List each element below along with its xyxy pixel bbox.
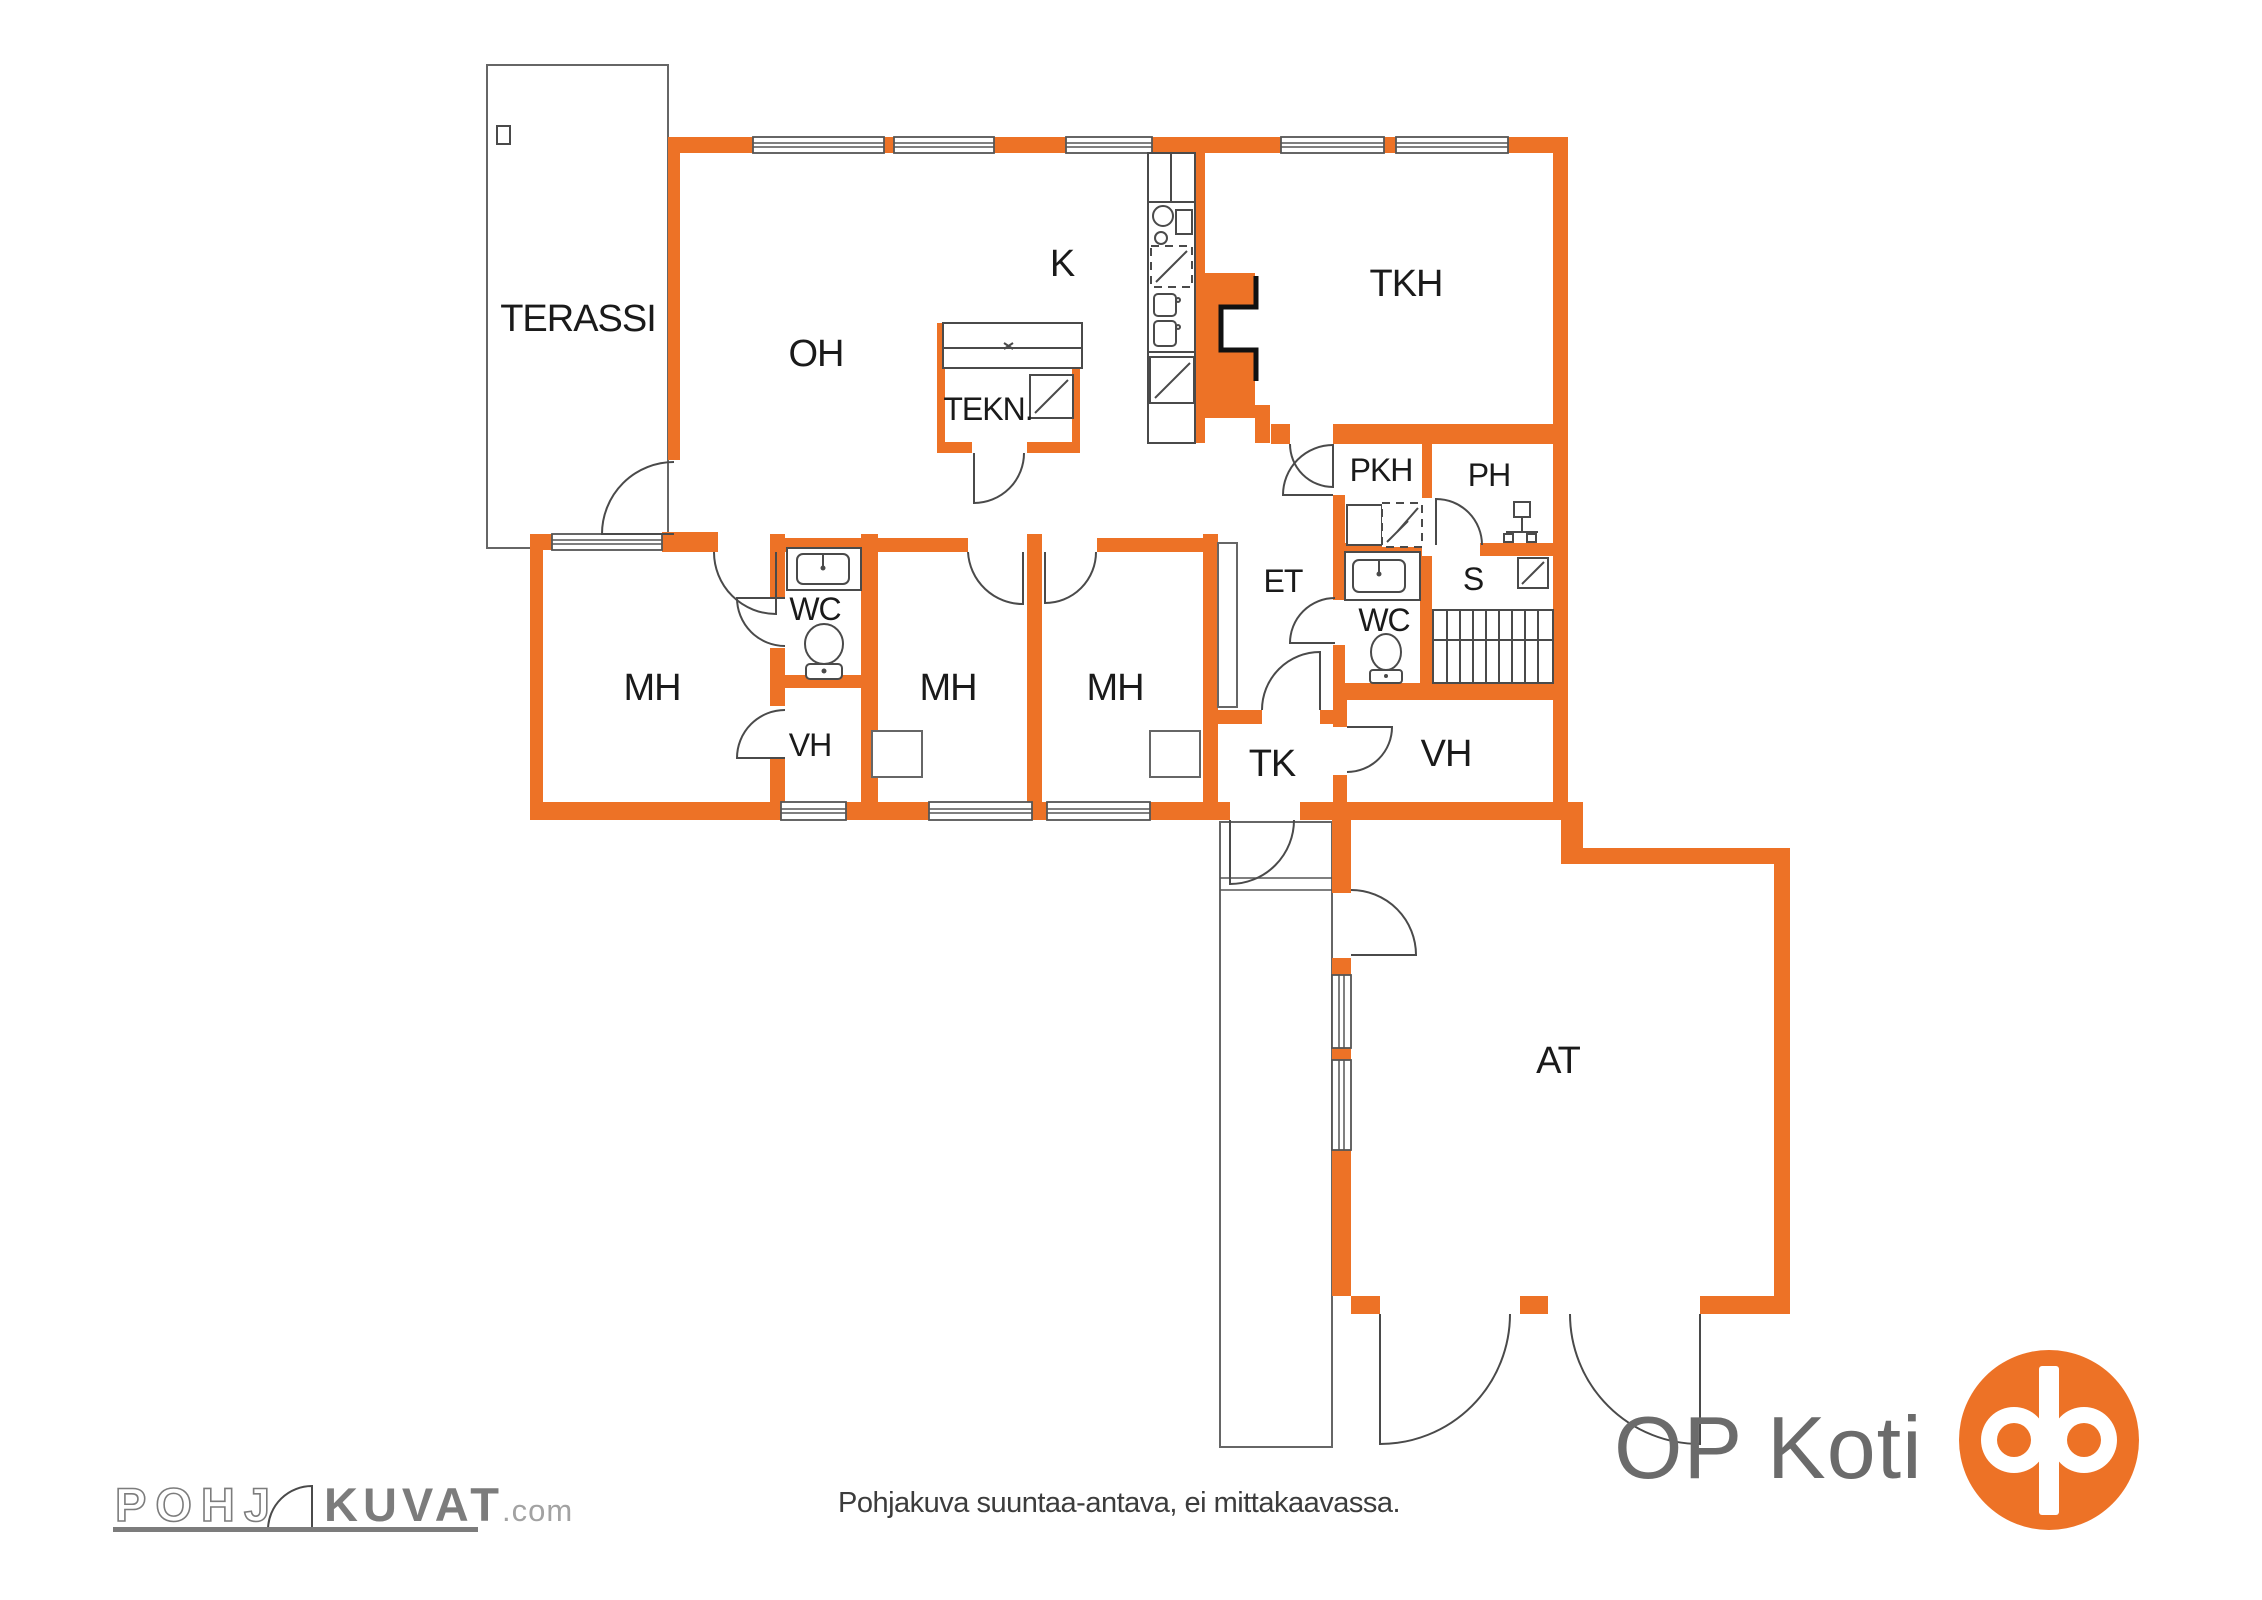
- door-vh-hall: [1347, 727, 1392, 772]
- disclaimer-text: Pohjakuva suuntaa-antava, ei mittakaavas…: [838, 1487, 1400, 1519]
- room-label-k: K: [1050, 243, 1075, 285]
- cabinet-icon: [943, 323, 1082, 368]
- door-ph: [1436, 499, 1482, 545]
- op-koti-wordmark: OP Koti: [1614, 1398, 1923, 1497]
- room-label-mh-middle: MH: [919, 667, 976, 709]
- appliance-icon: [1382, 503, 1422, 547]
- door-vh-master: [737, 710, 785, 758]
- shower-icon: [1504, 502, 1538, 542]
- window-icon: [1332, 975, 1351, 1048]
- door-mh-right: [1045, 552, 1096, 603]
- room-label-tk: TK: [1249, 743, 1296, 785]
- room-label-wc-master: WC: [789, 591, 840, 627]
- room-label-mh-master: MH: [623, 667, 680, 709]
- window-icon: [552, 534, 662, 550]
- room-label-at: AT: [1536, 1040, 1581, 1082]
- floor-plan-drawing: TERASSI OH K TKH TEKN. PKH PH ET WC S MH…: [0, 0, 2262, 1600]
- pohjakuvat-logo-solid-text: KUVAT: [324, 1478, 504, 1531]
- window-icon: [1281, 137, 1384, 153]
- room-label-vh-master: VH: [789, 727, 831, 763]
- pohjakuvat-logo: POHJ KUVAT .com: [113, 1478, 573, 1532]
- window-icon: [781, 802, 846, 820]
- door-tekn: [974, 453, 1024, 503]
- appliance-icon: [1030, 375, 1073, 418]
- wardrobe-icon: [1218, 543, 1237, 707]
- wardrobe-icon: [1150, 731, 1200, 777]
- room-label-pkh: PKH: [1350, 452, 1413, 488]
- floor-plan-page: TERASSI OH K TKH TEKN. PKH PH ET WC S MH…: [0, 0, 2262, 1600]
- toilet-icon: [805, 624, 843, 679]
- appliance-icon: [1150, 357, 1194, 403]
- doors: [602, 444, 1700, 1444]
- room-label-tekn: TEKN.: [943, 391, 1032, 427]
- room-label-wc-upper: WC: [1358, 602, 1409, 638]
- door-mh-middle: [968, 552, 1023, 604]
- window-icon: [1066, 137, 1152, 153]
- fireplace-icon: [1205, 273, 1270, 443]
- window-icon: [894, 137, 994, 153]
- room-label-tkh: TKH: [1370, 263, 1443, 305]
- door-garage-left: [1380, 1314, 1510, 1444]
- room-label-s: S: [1463, 561, 1483, 597]
- room-label-et: ET: [1264, 563, 1303, 599]
- door-tk: [1262, 652, 1320, 710]
- pkh-fixtures: [1347, 503, 1422, 547]
- pohjakuvat-logo-outline-text: POHJ: [115, 1478, 279, 1531]
- op-logo-icon: [1959, 1350, 2139, 1530]
- tekn-room: [937, 323, 1082, 453]
- room-label-vh-hall: VH: [1421, 733, 1472, 775]
- door-mh-master: [714, 552, 776, 614]
- appliance-icon: [1151, 246, 1192, 287]
- room-label-ph: PH: [1468, 457, 1510, 493]
- terrace-post-icon: [497, 126, 510, 144]
- kitchen-counter-icon: [1148, 153, 1195, 443]
- room-label-oh: OH: [789, 333, 844, 375]
- op-koti-logo: OP Koti: [1614, 1350, 2139, 1530]
- door-garage-side: [1351, 890, 1416, 955]
- sauna-benches-icon: [1433, 610, 1553, 683]
- window-icon: [753, 137, 884, 153]
- door-wc-upper: [1290, 598, 1335, 643]
- room-label-mh-right: MH: [1086, 667, 1143, 709]
- toilet-icon: [1370, 634, 1402, 683]
- pohjakuvat-logo-underline: [113, 1527, 478, 1532]
- room-label-terassi: TERASSI: [500, 298, 656, 340]
- wardrobe-icon: [872, 731, 922, 777]
- pohjakuvat-logo-suffix: .com: [502, 1493, 573, 1528]
- window-icon: [1396, 137, 1508, 153]
- window-icon: [1047, 802, 1150, 820]
- washer-icon: [1347, 505, 1382, 545]
- window-icon: [929, 802, 1032, 820]
- window-icon: [1332, 1060, 1351, 1150]
- entry-corridor-outline: [1220, 822, 1332, 1447]
- sauna-stove-icon: [1518, 558, 1548, 588]
